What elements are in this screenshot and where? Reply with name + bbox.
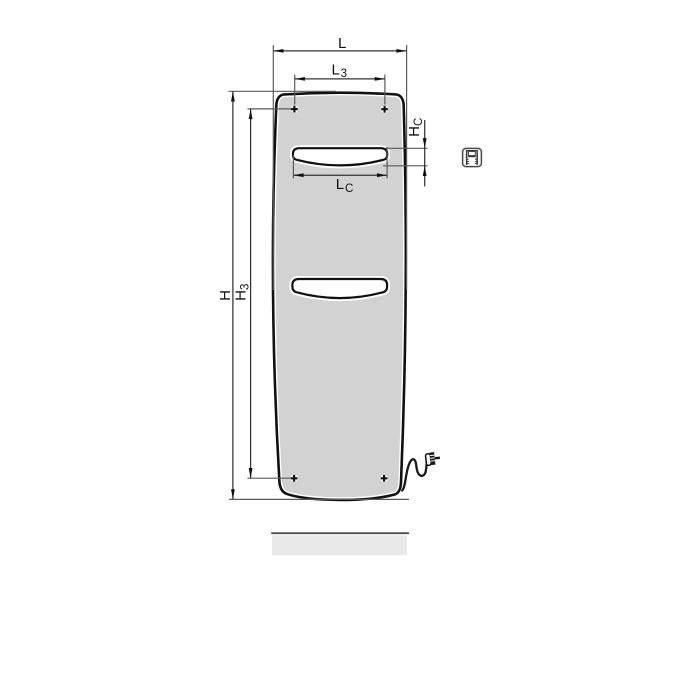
svg-text:HC: HC [406, 118, 425, 137]
svg-text:L: L [338, 35, 346, 52]
svg-text:H3: H3 [232, 284, 251, 301]
svg-text:L3: L3 [332, 61, 348, 80]
